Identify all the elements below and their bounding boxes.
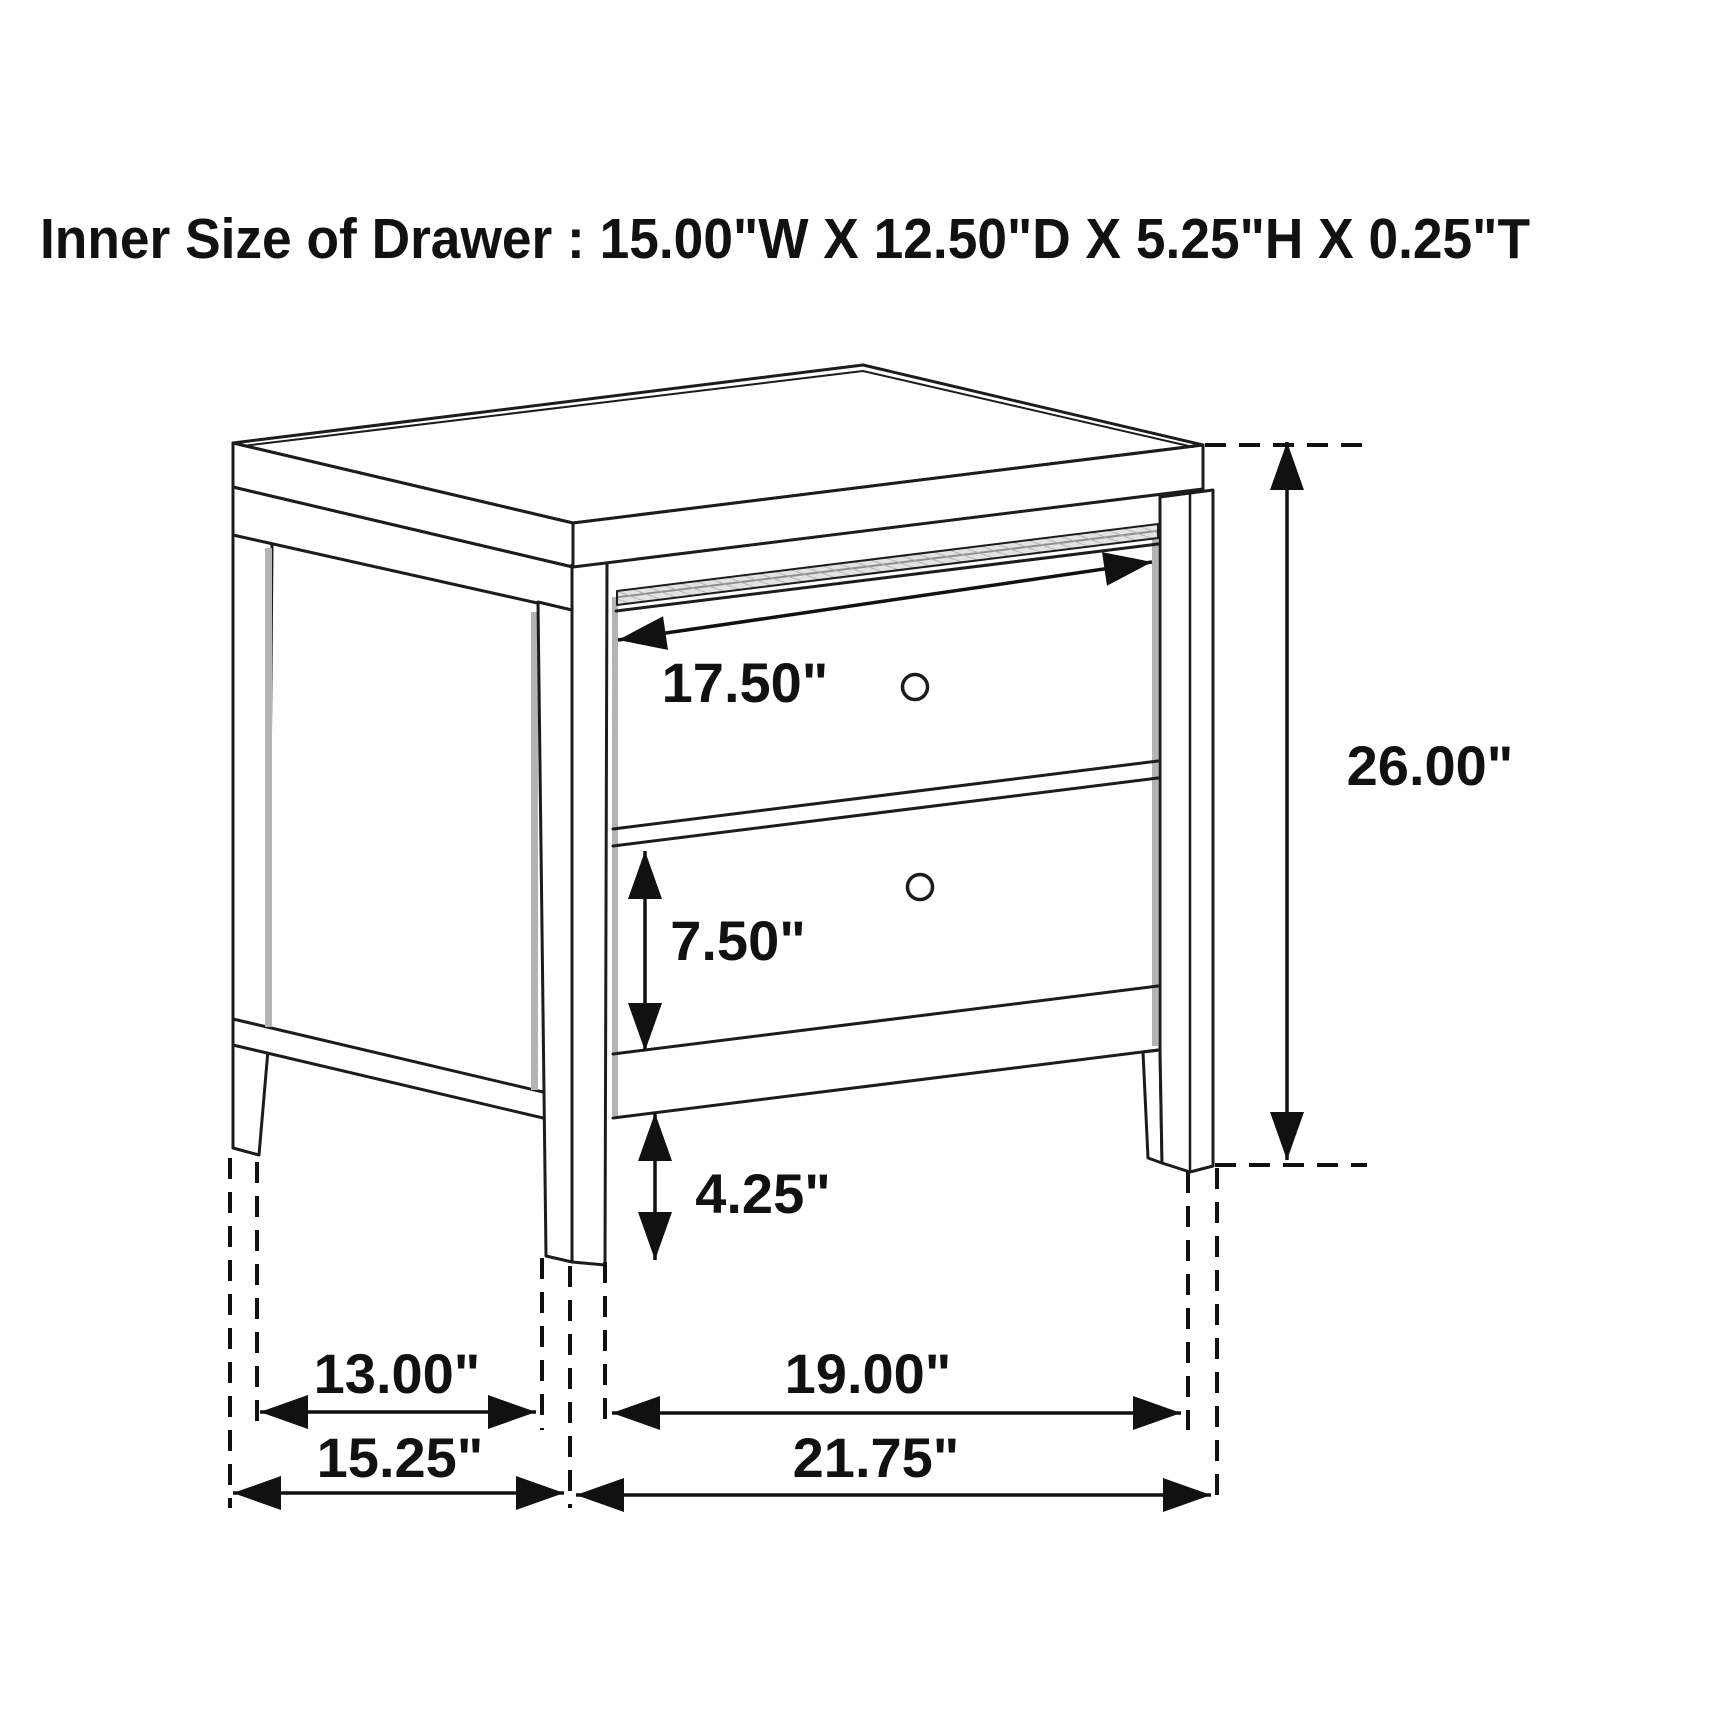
top-drawer-knob-icon: [903, 675, 928, 700]
dim-label-front-overall-width: 21.75": [793, 1426, 960, 1489]
dim-label-drawer-width: 17.50": [662, 651, 829, 714]
bottom-drawer-bottom-edge: [613, 986, 1158, 1054]
dim-label-side-inner-span: 13.00": [314, 1342, 481, 1405]
top-drawer-bottom-edge: [613, 761, 1158, 829]
dim-label-overall-height: 26.00": [1347, 734, 1514, 797]
dim-label-side-overall-depth: 15.25": [317, 1426, 484, 1489]
dim-label-leg-clearance: 4.25": [695, 1162, 831, 1225]
nightstand-dimension-diagram: Inner Size of Drawer : 15.00"W X 12.50"D…: [0, 0, 1726, 1726]
side-panel-shading: [265, 548, 538, 1090]
bottom-drawer-knob-icon: [908, 875, 933, 900]
mid-rail-edge: [613, 778, 1158, 846]
side-bottom-rail: [233, 1019, 560, 1122]
front-panel-shading: [612, 528, 1158, 1116]
dim-label-bottom-drawer-height: 7.50": [670, 909, 806, 972]
front-bottom-rail-edge: [613, 1050, 1158, 1118]
front-left-leg-side-face: [538, 602, 572, 1262]
diagram-canvas: Inner Size of Drawer : 15.00"W X 12.50"D…: [0, 0, 1726, 1726]
front-right-leg-front-face: [1160, 490, 1213, 1172]
front-left-leg-front-face: [572, 561, 607, 1265]
page-title: Inner Size of Drawer : 15.00"W X 12.50"D…: [40, 207, 1530, 271]
dim-label-front-inner-span: 19.00": [785, 1342, 952, 1405]
nightstand-line-art: [233, 365, 1213, 1265]
